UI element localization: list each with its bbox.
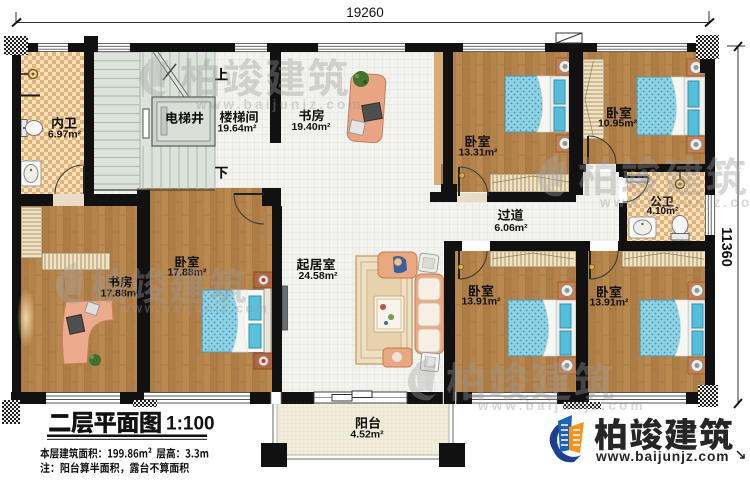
svg-text:13.91m²: 13.91m² — [589, 296, 629, 308]
svg-text:19260: 19260 — [346, 5, 384, 20]
svg-text:www.baijunjz.com: www.baijunjz.com — [599, 195, 750, 210]
svg-text:6.97m²: 6.97m² — [48, 128, 82, 140]
svg-text:19.64m²: 19.64m² — [217, 122, 257, 134]
svg-text:13.31m²: 13.31m² — [458, 146, 498, 158]
svg-text:19.40m²: 19.40m² — [291, 121, 331, 133]
svg-text:1:100: 1:100 — [166, 414, 215, 435]
svg-text:11360: 11360 — [718, 227, 734, 267]
svg-text:www.baijunjz.com: www.baijunjz.com — [119, 302, 269, 316]
svg-text:www.baijunjz.com: www.baijunjz.com — [477, 398, 646, 413]
svg-text:4.52m²: 4.52m² — [350, 428, 384, 440]
svg-text:www.baijunjz.com: www.baijunjz.com — [595, 449, 729, 464]
svg-text:www.baijunjz.com: www.baijunjz.com — [195, 97, 364, 112]
svg-text:10.95m²: 10.95m² — [598, 117, 638, 129]
svg-text:13.91m²: 13.91m² — [461, 295, 501, 307]
svg-text:24.58m²: 24.58m² — [298, 270, 338, 282]
svg-text:6.06m²: 6.06m² — [494, 222, 528, 234]
